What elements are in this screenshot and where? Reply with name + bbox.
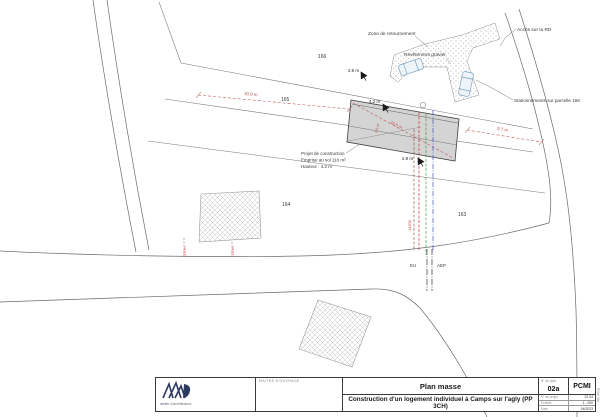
boundary-south — [148, 141, 545, 193]
plan-number-label: N° de plan — [541, 379, 556, 383]
label-projet-l3: Hauteur : 4.2 m — [301, 164, 332, 169]
dim-4.2m: 4.2 m — [369, 99, 380, 104]
label-eu: EU — [410, 263, 416, 268]
architect-logo-cell: atelier d'architecture — [156, 378, 256, 411]
client-cell: MAITRE D'OUVRAGE — [256, 378, 343, 411]
meta-rows: N° de projet 22 04 Echelle 1 : 200 Date … — [539, 395, 595, 411]
road-rd-west-edge — [505, 13, 551, 223]
meta-date-value: 04/2023 — [569, 406, 595, 411]
dim-1.5m-left: 1.5 m — [231, 247, 235, 257]
meta-row-date: Date 04/2023 — [539, 406, 595, 411]
label-aep: AEP — [437, 263, 446, 268]
meta-project-value: 22 04 — [569, 395, 595, 400]
road-west-edge2 — [107, 0, 149, 250]
boundary-north-spur — [159, 2, 181, 63]
label-projet-l1: Projet de construction — [301, 151, 345, 156]
architect-caption: atelier d'architecture — [160, 402, 191, 406]
dim-30.9m: 30.9 m — [244, 91, 258, 97]
plan-number: 02a — [548, 386, 560, 394]
meta-date-label: Date — [539, 406, 569, 411]
existing-building-south — [299, 300, 371, 367]
dim-2.9m-mid: 2.9 m — [402, 156, 413, 161]
meta-scale-label: Echelle — [539, 401, 569, 406]
project-title: Construction d'un logement individuel à … — [343, 395, 538, 411]
road-south-upper-edge — [0, 223, 549, 257]
dim-2.9m-top: 2.9 m — [348, 68, 359, 73]
architect-logo — [160, 380, 194, 402]
sheet-side-reference: PCMI 02a — [596, 378, 600, 412]
existing-building-164 — [199, 191, 261, 242]
drawing-title-cell: Plan masse Construction d'un logement in… — [343, 378, 539, 411]
boundary-marker-circle — [420, 102, 426, 108]
road-west-edge1 — [93, 0, 136, 252]
dim-14500: 14500 — [407, 219, 412, 231]
drawing-sheet: 166 165 164 163 Zone de retournement Rev… — [0, 0, 600, 417]
label-stationnements: Stationnements sur parcelle 166 — [514, 98, 580, 103]
drawing-title: Plan masse — [343, 378, 538, 395]
label-zone-retournement: Zone de retournement — [368, 31, 416, 37]
meta-scale-value: 1 : 200 — [569, 401, 595, 406]
parcel-label-164: 164 — [282, 202, 291, 208]
parcel-label-163: 163 — [458, 212, 467, 218]
marker-icon — [359, 72, 368, 81]
label-projet-l2: Emprise au sol 110 m² — [301, 158, 346, 163]
label-revetement-gravier: Revêtement gravier — [404, 52, 446, 58]
label-acces-rd: Accès sur la RD — [517, 27, 552, 33]
dim-9.7m: 9.7 m — [497, 126, 509, 133]
marker-icon — [416, 158, 425, 167]
site-plan: 166 165 164 163 Zone de retournement Rev… — [0, 0, 600, 417]
title-block: atelier d'architecture MAITRE D'OUVRAGE … — [155, 377, 596, 412]
dim-2.9m-left: 2.9 m — [183, 247, 187, 257]
plan-number-box: N° de plan 02a — [539, 378, 569, 394]
meta-project-label: N° de projet — [539, 395, 569, 400]
roads — [0, 0, 577, 417]
parcel-label-165: 165 — [281, 97, 290, 103]
client-label: MAITRE D'OUVRAGE — [259, 379, 300, 383]
parcel-label-166: 166 — [318, 54, 327, 60]
document-type: PCMI — [569, 378, 595, 394]
sheet-number-cell: N° de plan 02a PCMI N° de projet 22 04 E… — [539, 378, 595, 411]
road-rd-east-edge — [519, 9, 577, 417]
